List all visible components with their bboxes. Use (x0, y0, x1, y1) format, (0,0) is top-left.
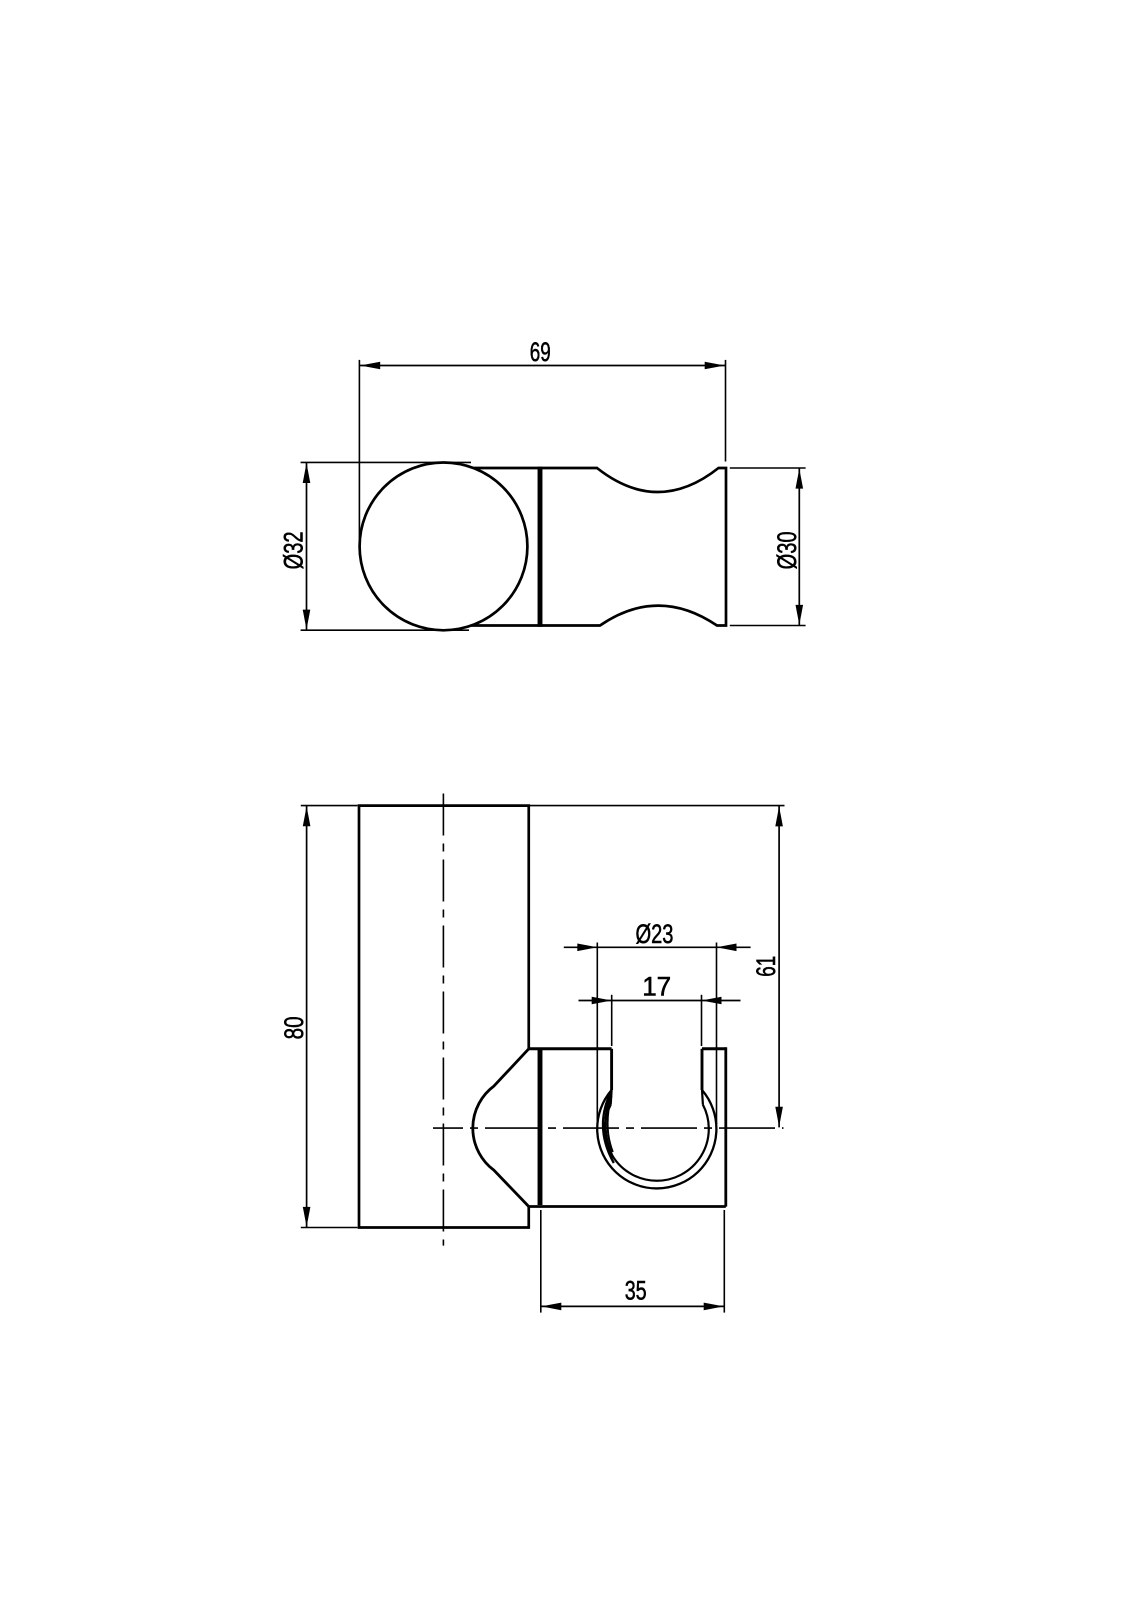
svg-text:35: 35 (625, 1276, 647, 1306)
svg-text:61: 61 (751, 956, 781, 977)
svg-text:Ø30: Ø30 (772, 531, 802, 569)
svg-text:69: 69 (530, 337, 551, 367)
svg-text:17: 17 (642, 972, 671, 1002)
svg-text:Ø23: Ø23 (636, 919, 674, 949)
svg-text:80: 80 (279, 1016, 309, 1039)
svg-text:Ø32: Ø32 (278, 531, 308, 569)
